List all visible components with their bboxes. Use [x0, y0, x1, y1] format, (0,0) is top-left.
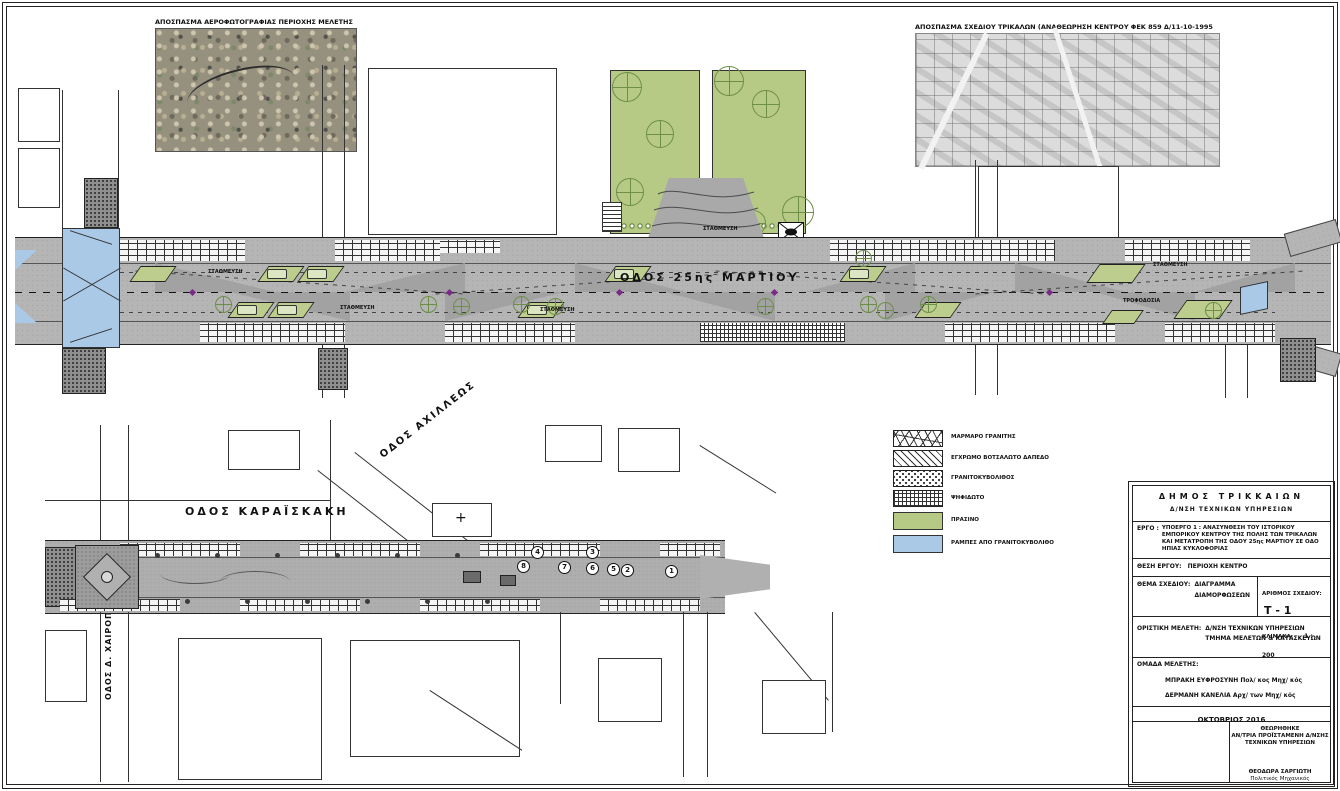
legend-label: ΓΡΑΝΙΤΟΚΥΒΟΛΙΘΟΣ [951, 475, 1014, 481]
intersection-ramp-blue [62, 228, 120, 348]
block-dark-hatch [84, 178, 118, 228]
drawing-sheet: ΑΠΟΣΠΑΣΜΑ ΑΕΡΟΦΩΤΟΓΡΑΦΙΑΣ ΠΕΡΙΟΧΗΣ ΜΕΛΕΤ… [0, 0, 1340, 791]
building-outline [350, 640, 520, 757]
title-block-header: ΔΗΜΟΣ ΤΡΙΚΚΑΙΩΝ Δ/ΝΣΗ ΤΕΧΝΙΚΩΝ ΥΠΗΡΕΣΙΩΝ [1133, 486, 1330, 522]
parking-label: ΣΤΑΘΜΕΥΣΗ [540, 307, 575, 313]
project-text: ΥΠΟΕΡΓΟ 1 : ΑΝΑΣΥΝΘΕΣΗ ΤΟΥ ΙΣΤΟΡΙΚΟΥ ΕΜΠ… [1162, 525, 1322, 555]
block-dark-hatch [62, 348, 106, 394]
road-centerline [15, 292, 1331, 293]
plaza-circle [101, 571, 113, 583]
street-line [62, 90, 63, 228]
legend-swatch-blue [893, 535, 943, 553]
parking-bay [1086, 264, 1145, 283]
steps-symbol [602, 202, 622, 232]
legend-label: ΨΗΦΙΔΩΤΟ [951, 495, 984, 501]
corridor-25-martiou: ΟΔΟΣ 25ης ΜΑΡΤΙΟΥ ΣΤΑΘΜΕΥΣΗ ΣΤΑΘΜΕΥΣΗ ΣΤ… [15, 237, 1331, 345]
street-line [1225, 343, 1226, 398]
entry-plaza [75, 545, 139, 609]
point-marker: 6 [586, 562, 599, 575]
parking-label: ΣΤΑΘΜΕΥΣΗ [1153, 262, 1188, 268]
tree-symbol [215, 296, 232, 313]
bollard-dot [425, 599, 430, 604]
bollard-dot [185, 599, 190, 604]
tree-symbol [714, 66, 744, 96]
paving-hatch [600, 599, 700, 611]
point-marker: 4 [531, 546, 544, 559]
number-label: ΑΡΙΘΜΟΣ ΣΧΕΔΙΟΥ: [1262, 591, 1322, 597]
street-line [100, 612, 101, 782]
tree-symbol [646, 120, 674, 148]
tree-symbol [612, 72, 642, 102]
car-symbol [277, 305, 297, 315]
point-marker: 2 [621, 564, 634, 577]
paving-hatch [420, 599, 540, 611]
street-line [1247, 343, 1248, 398]
kiosk-small [463, 571, 481, 583]
location-row: ΘΕΣΗ ΕΡΓΟΥ: ΠΕΡΙΟΧΗ ΚΕΝΤΡΟ [1133, 559, 1330, 578]
legend-swatch-pebble [893, 470, 943, 487]
street-line [45, 500, 330, 501]
ramp-diagonal [70, 230, 112, 245]
legend-label: ΜΑΡΜΑΡΟ ΓΡΑΝΙΤΗΣ [951, 434, 1016, 440]
location-text: ΠΕΡΙΟΧΗ ΚΕΝΤΡΟ [1188, 563, 1248, 573]
legend: ΜΑΡΜΑΡΟ ΓΡΑΝΙΤΗΣ ΕΓΧΡΩΜΟ ΒΟΤΣΑΛΩΤΟ ΔΑΠΕΔ… [893, 430, 1133, 560]
building-outline [762, 680, 826, 734]
ramp-diagonal [70, 328, 112, 343]
aerial-river-line [183, 56, 300, 123]
ramp-blue [1240, 281, 1268, 315]
final-study-label: ΟΡΙΣΤΙΚΗ ΜΕΛΕΤΗ: [1137, 625, 1201, 648]
legend-swatch-grid [893, 490, 943, 507]
bollard-dot [395, 553, 400, 558]
cityplan-road-line [918, 32, 989, 169]
bollard-dot [275, 553, 280, 558]
paving-hatch [445, 323, 575, 342]
bollard-dot [215, 553, 220, 558]
building-outline [545, 425, 602, 462]
paving-hatch [440, 240, 500, 253]
street-line [707, 612, 708, 777]
block-dark-hatch [1280, 338, 1316, 382]
car-symbol [267, 269, 287, 279]
block-dark-hatch [318, 348, 348, 390]
street-line [975, 343, 976, 395]
paving-hatch [1125, 240, 1250, 261]
signature-right-cell: ΘΕΩΡΗΘΗΚΕ ΑΝ/ΤΡΙΑ ΠΡΟΪΣΤΑΜΕΝΗ Δ/ΝΣΗΣ ΤΕΧ… [1230, 722, 1330, 782]
cityplan-road-line [1052, 27, 1105, 176]
building-outline [368, 68, 557, 235]
paving-hatch [335, 240, 440, 261]
legend-swatch-marble [893, 430, 943, 447]
cityplan-extract-label: ΑΠΟΣΠΑΣΜΑ ΣΧΕΔΙΟΥ ΤΡΙΚΑΛΩΝ (ΑΝΑΘΕΩΡΗΣΗ Κ… [915, 23, 1213, 31]
street-line [975, 160, 976, 237]
municipality-name: ΔΗΜΟΣ ΤΡΙΚΚΑΙΩΝ [1133, 492, 1330, 501]
bollard-dot [485, 599, 490, 604]
final-study-line2: ΤΜΗΜΑ ΜΕΛΕΤΩΝ & ΚΑΤΑΣΚΕΥΩΝ [1205, 635, 1321, 643]
tree-symbol [453, 298, 470, 315]
subject-line1: ΔΙΑΓΡΑΜΜΑ [1194, 581, 1250, 589]
paving-hatch [1165, 323, 1275, 342]
subject-number-row: ΘΕΜΑ ΣΧΕΔΙΟΥ: ΔΙΑΓΡΑΜΜΑ ΔΙΑΜΟΡΦΩΣΕΩΝ ΑΡΙ… [1133, 577, 1330, 617]
approved-line1: ΑΝ/ΤΡΙΑ ΠΡΟΪΣΤΑΜΕΝΗ Δ/ΝΣΗΣ [1230, 733, 1330, 740]
street-name-karaiskaki: ΟΔΟΣ ΚΑΡΑΪΣΚΑΚΗ [185, 505, 349, 518]
signature-row: ΘΕΩΡΗΘΗΚΕ ΑΝ/ΤΡΙΑ ΠΡΟΪΣΤΑΜΕΝΗ Δ/ΝΣΗΣ ΤΕΧ… [1133, 722, 1330, 782]
bollard-dot [335, 553, 340, 558]
aerial-extract-label: ΑΠΟΣΠΑΣΜΑ ΑΕΡΟΦΩΤΟΓΡΑΦΙΑΣ ΠΕΡΙΟΧΗΣ ΜΕΛΕΤ… [155, 18, 353, 26]
subject-line2: ΔΙΑΜΟΡΦΩΣΕΩΝ [1194, 592, 1250, 600]
paving-hatch-mosaic [700, 323, 845, 342]
project-row: ΕΡΓΟ : ΥΠΟΕΡΓΟ 1 : ΑΝΑΣΥΝΘΕΣΗ ΤΟΥ ΙΣΤΟΡΙ… [1133, 522, 1330, 559]
approved-title: ΘΕΩΡΗΘΗΚΕ [1230, 726, 1330, 733]
team-member-1: ΜΠΡΑΚΗ ΕΥΦΡΟΣΥΝΗ Πολ/ κος Μηχ/ κός [1165, 677, 1326, 685]
street-line [100, 425, 101, 540]
bollard-dot [305, 599, 310, 604]
signature-left-cell [1133, 722, 1230, 782]
tree-symbol [513, 296, 530, 313]
church-plot: + [432, 503, 492, 537]
street-line [344, 65, 345, 237]
legend-label: ΡΑΜΠΕΣ ΑΠΟ ΓΡΑΝΙΤΟΚΥΒΟΛΙΘΟ [951, 540, 1054, 546]
loading-label: ΤΡΟΦΟΔΟΣΙΑ [1123, 298, 1160, 304]
paving-hatch [945, 323, 1115, 342]
aerial-photo [155, 28, 357, 152]
building-outline [18, 88, 60, 142]
final-study-row: ΟΡΙΣΤΙΚΗ ΜΕΛΕΤΗ: Δ/ΝΣΗ ΤΕΧΝΙΚΩΝ ΥΠΗΡΕΣΙΩ… [1133, 617, 1330, 657]
point-marker: 3 [586, 546, 599, 559]
team-label: ΟΜΑΔΑ ΜΕΛΕΤΗΣ: [1137, 661, 1326, 669]
paving-hatch [300, 543, 420, 556]
cityplan-extract [915, 33, 1220, 167]
bollard-dot [155, 553, 160, 558]
approved-line2: ΤΕΧΝΙΚΩΝ ΥΠΗΡΕΣΙΩΝ [1230, 740, 1330, 747]
street-line [128, 612, 129, 782]
team-row: ΟΜΑΔΑ ΜΕΛΕΤΗΣ: ΜΠΡΑΚΗ ΕΥΦΡΟΣΥΝΗ Πολ/ κος… [1133, 658, 1330, 707]
title-block: ΔΗΜΟΣ ΤΡΙΚΚΑΙΩΝ Δ/ΝΣΗ ΤΕΧΝΙΚΩΝ ΥΠΗΡΕΣΙΩΝ… [1128, 481, 1335, 787]
building-outline [18, 148, 60, 208]
block-dark-hatch [45, 547, 79, 607]
legend-label: ΕΓΧΡΩΜΟ ΒΟΤΣΑΛΩΤΟ ΔΑΠΕΔΟ [951, 455, 1049, 461]
final-study-line1: Δ/ΝΣΗ ΤΕΧΝΙΚΩΝ ΥΠΗΡΕΣΙΩΝ [1205, 625, 1321, 633]
approved-role: Πολιτικός Μηχανικός [1230, 776, 1330, 782]
point-marker: 7 [558, 561, 571, 574]
team-member-2: ΔΕΡΜΑΝΗ ΚΑΝΕΛΙΑ Αρχ/ των Μηχ/ κός [1165, 692, 1326, 700]
kiosk-small [500, 575, 516, 586]
parking-label: ΣΤΑΘΜΕΥΣΗ [340, 305, 375, 311]
sidewalk-edge-line [45, 597, 725, 598]
parking-label: ΣΤΑΘΜΕΥΣΗ [703, 226, 738, 232]
number-scale-cell: ΑΡΙΘΜΟΣ ΣΧΕΔΙΟΥ: Τ - 1 ΚΛΙΜΑΚΑ: 1 : 200 [1258, 577, 1330, 616]
building-outline [45, 630, 87, 702]
building-outline [178, 638, 322, 780]
street-line [128, 425, 129, 540]
approved-name: ΘΕΟΔΩΡΑ ΣΑΡΓΙΩΤΗ [1230, 769, 1330, 776]
number-value: Τ - 1 [1264, 604, 1291, 617]
street-name-label: ΟΔΟΣ 25ης ΜΑΡΤΙΟΥ [620, 271, 799, 284]
street-line [322, 65, 323, 237]
paving-hatch [120, 240, 245, 261]
cross-symbol: + [455, 510, 467, 526]
street-line [560, 612, 561, 704]
parking-label: ΣΤΑΘΜΕΥΣΗ [208, 269, 243, 275]
date-row: ΟΚΤΩΒΡΙΟΣ 2016 [1133, 707, 1330, 722]
paving-hatch [660, 543, 720, 556]
department-name: Δ/ΝΣΗ ΤΕΧΝΙΚΩΝ ΥΠΗΡΕΣΙΩΝ [1133, 506, 1330, 513]
street-line [118, 90, 119, 228]
street-line [832, 612, 833, 732]
bollard-dot [365, 599, 370, 604]
tree-symbol [752, 90, 780, 118]
paving-hatch [200, 323, 345, 342]
street-line [683, 612, 684, 777]
tree-symbol [860, 296, 877, 313]
tree-symbol [1205, 302, 1222, 319]
bench-curve [220, 571, 290, 592]
paving-hatch [240, 599, 360, 611]
sidewalk-edge-line [45, 557, 725, 558]
street-line [997, 160, 998, 237]
location-label: ΘΕΣΗ ΕΡΓΟΥ: [1137, 563, 1182, 573]
car-symbol [849, 269, 869, 279]
car-symbol [237, 305, 257, 315]
project-label: ΕΡΓΟ : [1137, 525, 1159, 555]
car-symbol [307, 269, 327, 279]
point-marker: 1 [665, 565, 678, 578]
point-marker: 5 [607, 563, 620, 576]
bollard-dot [245, 599, 250, 604]
legend-swatch-diagonal [893, 450, 943, 467]
legend-label: ΠΡΑΣΙΝΟ [951, 517, 979, 523]
corridor-karaiskaki: 4 3 8 7 6 5 2 1 [45, 540, 725, 614]
tree-symbol [757, 298, 774, 315]
street-line [997, 343, 998, 395]
tree-symbol [877, 302, 894, 319]
legend-swatch-green [893, 512, 943, 530]
point-marker: 8 [517, 560, 530, 573]
building-outline [228, 430, 300, 470]
building-outline [618, 428, 680, 472]
bollard-dot [455, 553, 460, 558]
building-outline [598, 658, 662, 722]
subject-cell: ΘΕΜΑ ΣΧΕΔΙΟΥ: ΔΙΑΓΡΑΜΜΑ ΔΙΑΜΟΡΦΩΣΕΩΝ [1133, 577, 1258, 616]
tree-symbol [420, 296, 437, 313]
tree-symbol [855, 250, 872, 267]
road-wedge [345, 263, 465, 292]
subject-label: ΘΕΜΑ ΣΧΕΔΙΟΥ: [1137, 581, 1190, 612]
tree-symbol [920, 296, 937, 313]
building-outline [978, 166, 1119, 238]
